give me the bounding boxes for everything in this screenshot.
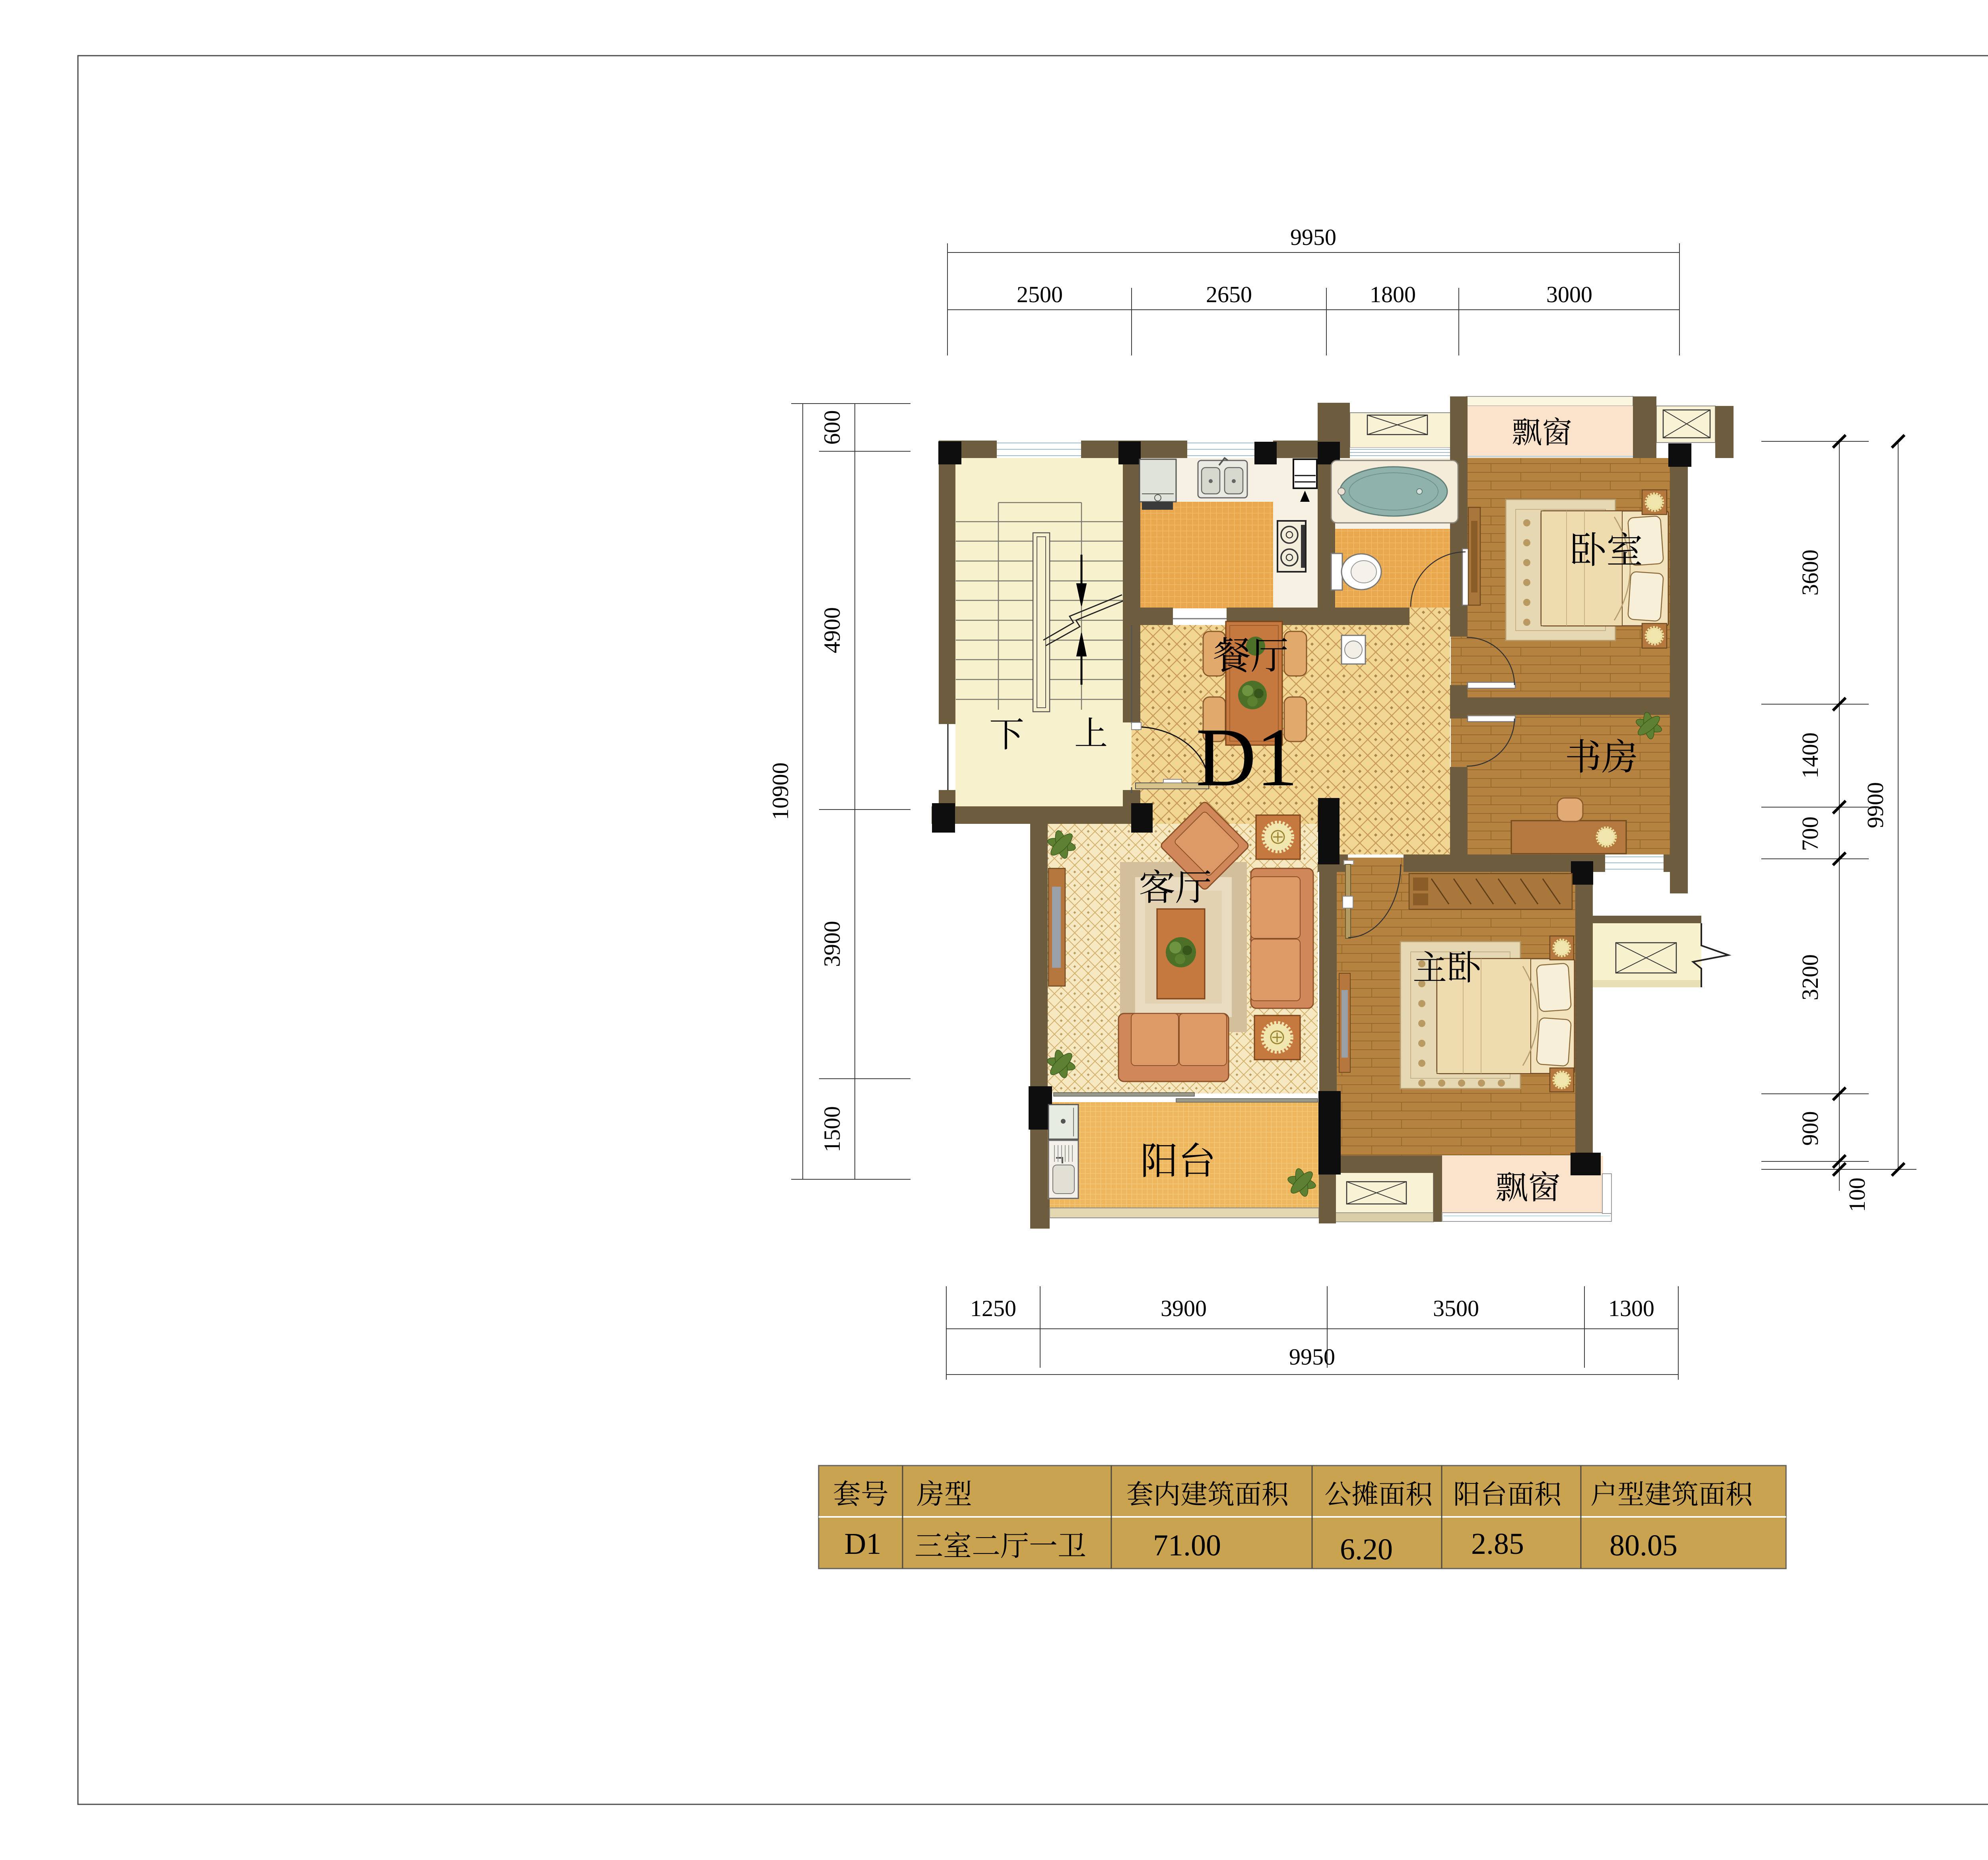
svg-text:9900: 9900 <box>1862 782 1888 828</box>
svg-text:1250: 1250 <box>970 1295 1016 1321</box>
svg-text:3500: 3500 <box>1433 1295 1479 1321</box>
svg-text:700: 700 <box>1797 817 1823 851</box>
svg-text:D1: D1 <box>845 1527 881 1561</box>
svg-text:9950: 9950 <box>1290 224 1336 250</box>
svg-text:3900: 3900 <box>819 921 845 967</box>
svg-text:3000: 3000 <box>1546 282 1592 307</box>
svg-text:2.85: 2.85 <box>1471 1527 1524 1561</box>
svg-text:1300: 1300 <box>1608 1295 1654 1321</box>
svg-text:3200: 3200 <box>1797 954 1823 1000</box>
svg-text:71.00: 71.00 <box>1153 1529 1221 1562</box>
svg-text:4900: 4900 <box>819 607 845 653</box>
svg-text:1400: 1400 <box>1797 732 1823 779</box>
svg-text:D1: D1 <box>1196 711 1298 804</box>
svg-text:2650: 2650 <box>1206 282 1252 307</box>
svg-text:2500: 2500 <box>1017 282 1063 307</box>
svg-text:3600: 3600 <box>1797 549 1823 596</box>
svg-text:6.20: 6.20 <box>1340 1533 1393 1566</box>
svg-text:1500: 1500 <box>819 1106 845 1152</box>
svg-text:3900: 3900 <box>1161 1295 1207 1321</box>
svg-text:100: 100 <box>1844 1178 1870 1212</box>
svg-text:600: 600 <box>819 410 845 445</box>
svg-text:80.05: 80.05 <box>1609 1529 1677 1562</box>
svg-text:900: 900 <box>1797 1111 1823 1146</box>
svg-text:1800: 1800 <box>1370 282 1416 307</box>
svg-text:9950: 9950 <box>1289 1344 1335 1370</box>
svg-text:10900: 10900 <box>767 763 793 820</box>
